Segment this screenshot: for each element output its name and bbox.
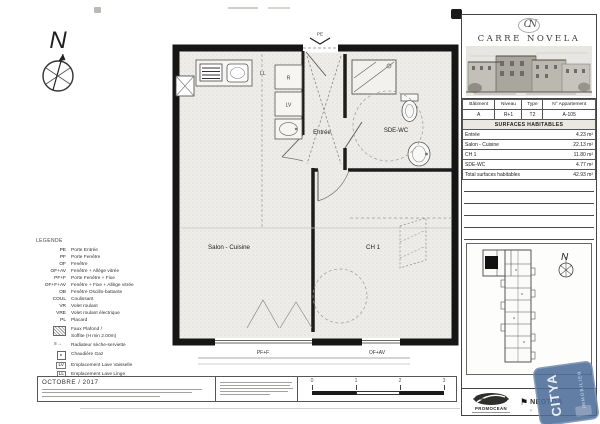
legend-label: Fenêtre Oscillo-battante <box>71 289 174 296</box>
room-label-sdewc: SDE-WC <box>384 128 409 134</box>
legend-abbr: COUL <box>36 296 71 303</box>
legend-label: Porte Fenêtre <box>71 254 174 261</box>
row-label: SDE-WC <box>463 160 543 170</box>
highlighted-unit <box>485 256 498 269</box>
title-block-panel: CN CARRE NOVELA <box>461 14 597 416</box>
fine-print-line <box>220 391 288 392</box>
row-value: 4.23 m² <box>543 130 596 140</box>
legend-abbr: OB <box>36 289 71 296</box>
legend-abbr: OF+AV <box>36 268 71 275</box>
program-name: CARRE NOVELA <box>462 34 596 44</box>
legend-label: Porte Entrée <box>71 247 174 254</box>
total-label: Total surfaces habitables <box>463 170 543 180</box>
scale-tickmark <box>356 385 357 390</box>
legend-abbr: VRE <box>36 310 71 317</box>
radiator-icon <box>54 342 66 348</box>
legend-label: Porte Fenêtre + Fixe <box>71 275 174 282</box>
legend-label: Radiateur sèche-serviette <box>71 342 174 349</box>
legend-label: Placard <box>71 317 174 324</box>
disclaimer-cell <box>216 377 298 401</box>
unit-niveau: R+1 <box>495 110 522 120</box>
row-value: 4.77 m² <box>543 160 596 170</box>
scale-bar-segment <box>312 391 356 395</box>
promocean-tagline-line <box>472 412 510 413</box>
scale-tickmark <box>312 385 313 390</box>
scan-artifact <box>80 408 460 409</box>
scanned-floorplan-sheet: N PE PF+F OF+AV <box>0 0 600 424</box>
scan-artifact <box>228 7 258 9</box>
col-header-appartement: N° Appartement <box>543 100 596 110</box>
keyplan-drawing: N <box>467 244 591 372</box>
scan-artifact <box>268 7 290 9</box>
legend-abbr: OF+F+AV <box>36 282 71 289</box>
legend-label: Emplacement Lave Vaisselle <box>71 362 174 369</box>
date-cell: OCTOBRE / 2017 <box>38 377 216 401</box>
fine-print-line <box>220 382 292 383</box>
row-value: 11.80 m² <box>543 150 596 160</box>
section-header: SURFACES HABITABLES <box>463 120 596 130</box>
fine-print-line <box>220 388 293 389</box>
sink-unit <box>275 119 302 139</box>
room-label-ch1: CH 1 <box>366 244 381 251</box>
empty-ruled-lines <box>464 180 594 240</box>
promocean-emblem-icon <box>471 392 511 406</box>
scalebar-cell: 0 1 2 3 <box>298 377 456 401</box>
keyplan-north-letter: N <box>561 252 569 263</box>
ch1-window-label: OF+AV <box>369 350 386 356</box>
salon-window-label: PF+F <box>257 350 269 356</box>
footer-band: OCTOBRE / 2017 0 1 2 3 <box>37 376 457 402</box>
north-letter: N <box>49 27 67 54</box>
washer-label: LL <box>260 71 266 77</box>
col-header-batiment: Bâtiment <box>463 100 495 110</box>
dishwasher-label: LV <box>286 103 292 109</box>
legend-label: Faux Plafond / Soffite (H min 2.00m) <box>71 326 174 340</box>
fine-print-line <box>42 396 160 397</box>
legend-label: Volet roulant électrique <box>71 310 174 317</box>
fine-print-line <box>220 385 290 386</box>
entrance-arrow-icon <box>310 38 330 44</box>
boiler-icon <box>57 351 66 360</box>
entrance-door-label: PE <box>317 32 323 37</box>
floorplan-drawing: PE PF+F OF+AV LL R LV <box>168 30 463 375</box>
fine-print-line <box>220 394 270 395</box>
stamp-brand: CITYA <box>543 370 565 420</box>
legend-abbr: PF+F <box>36 275 71 282</box>
row-label: Salon - Cuisine <box>463 140 543 150</box>
cn-monogram-logo: CN <box>518 18 540 33</box>
row-label: CH 1 <box>463 150 543 160</box>
false-ceiling-hatch-icon <box>53 326 66 336</box>
room-label-salon: Salon - Cuisine <box>208 244 251 251</box>
legend-label: Fenêtre + Allège vitrée <box>71 268 174 275</box>
unit-type: T2 <box>522 110 543 120</box>
col-header-niveau: Niveau <box>495 100 522 110</box>
unit-batiment: A <box>463 110 495 120</box>
col-header-type: Type <box>522 100 543 110</box>
north-compass-icon: N <box>28 20 92 100</box>
surfaces-table: Bâtiment Niveau Type N° Appartement A R+… <box>462 99 596 180</box>
legend-abbr: OF <box>36 261 71 268</box>
scale-tick: 1 <box>355 378 358 384</box>
legend-label: Coulissant <box>71 296 174 303</box>
apartment-outline <box>176 48 455 342</box>
legend-abbr: PF <box>36 254 71 261</box>
legend-label: Fenêtre <box>71 261 174 268</box>
legend: LEGENDE PEPorte Entrée PFPorte Fenêtre O… <box>36 238 174 396</box>
scale-tick: 3 <box>443 378 446 384</box>
fine-print-line <box>42 392 192 393</box>
scale-tick: 0 <box>311 378 314 384</box>
scale-tick: 2 <box>399 378 402 384</box>
legend-abbr: PL <box>36 317 71 324</box>
scale-bar-segment <box>356 391 400 395</box>
scale-bar-segment <box>400 391 444 395</box>
promocean-logo: PROMOCEAN <box>462 392 520 413</box>
kitchen-sink <box>227 64 248 82</box>
plan-date: OCTOBRE / 2017 <box>42 379 211 386</box>
legend-label: Volet roulant <box>71 303 174 310</box>
flag-icon: ⚑ <box>520 398 528 407</box>
scale-tickmark <box>400 385 401 390</box>
row-value: 22.13 m² <box>543 140 596 150</box>
room-label-entree: Entrée <box>313 130 331 136</box>
brand-block: CN CARRE NOVELA <box>462 15 596 99</box>
fridge-label: R <box>287 76 291 82</box>
legend-label: Chaudière Gaz <box>71 351 174 358</box>
unit-appartement: A-105 <box>543 110 596 120</box>
citya-stamp: CITYA IMMOBILIER <box>532 360 600 424</box>
promocean-name: PROMOCEAN <box>462 406 520 411</box>
legend-abbr: VR <box>36 303 71 310</box>
legend-abbr: LV <box>56 362 66 369</box>
building-sketch-image <box>466 46 592 96</box>
row-label: Entrée <box>463 130 543 140</box>
fine-print-line <box>42 389 202 390</box>
legend-abbr: PE <box>36 247 71 254</box>
total-value: 42.93 m² <box>543 170 596 180</box>
toilet <box>401 94 418 101</box>
legend-label: Fenêtre + Fixe + Allège vitrée <box>71 282 174 289</box>
scan-artifact <box>94 7 101 13</box>
legend-title: LEGENDE <box>36 238 174 244</box>
keyplan-box: N <box>466 243 592 375</box>
stamp-light-patch <box>575 405 592 417</box>
scale-tickmark <box>444 385 445 390</box>
